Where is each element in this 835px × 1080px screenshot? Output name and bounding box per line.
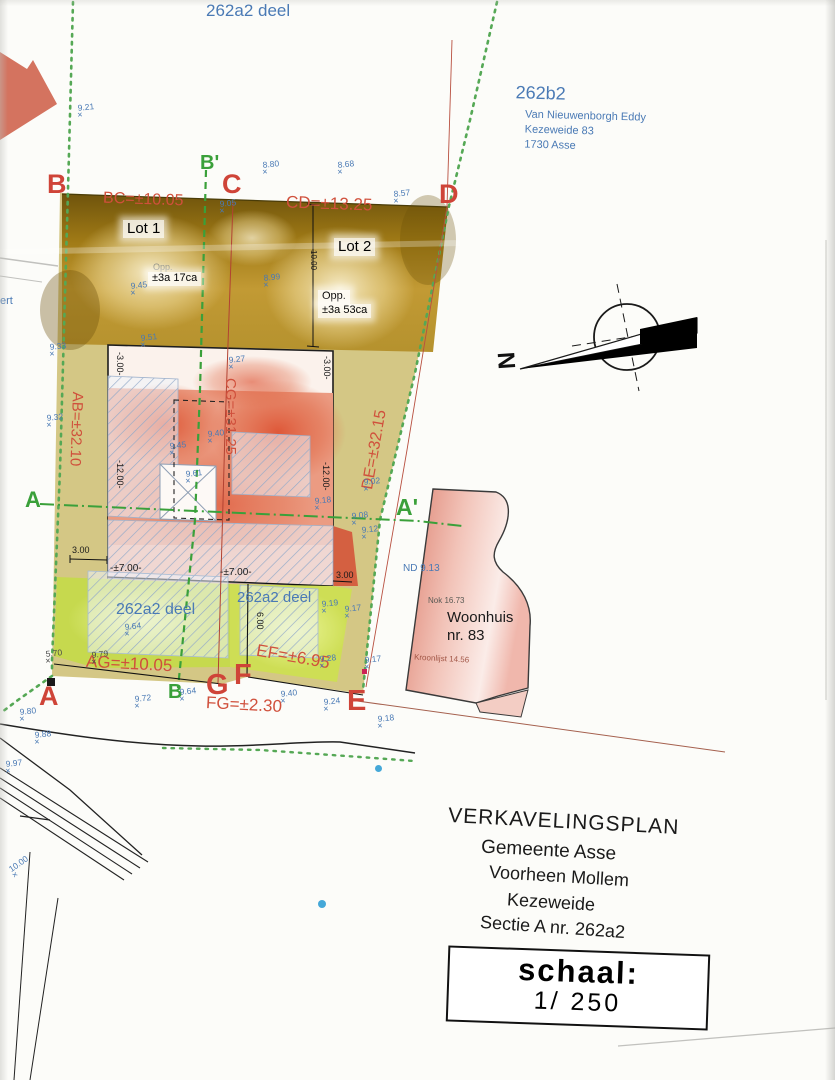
spot-height: 8.68× (337, 160, 355, 176)
measure-cg: CG=±31.25 (222, 378, 238, 455)
lot1-label: Lot 1 (123, 220, 164, 238)
spot-height: 9.97× (5, 759, 23, 775)
measure-ab: AB=±32.10 (67, 391, 85, 466)
woonhuis-shape (406, 489, 530, 717)
north-label: N (493, 351, 519, 370)
front-garden-left (54, 571, 230, 668)
point-e: E (347, 686, 366, 716)
spot-height: 9.51× (140, 333, 158, 349)
verkavelingsplan-scan: 262a2 deel ert 262b2 Van Nieuwenborgh Ed… (0, 0, 835, 1080)
point-a-left: A (25, 488, 41, 511)
neighbor-city: 1730 Asse (524, 137, 645, 155)
spot-height: 9.27× (228, 355, 246, 371)
spot-height: 9.17× (344, 604, 362, 620)
point-b-prime: B' (200, 153, 219, 174)
lot2-opp-label: Opp. (318, 290, 350, 304)
lot1-area: ±3a 17ca (148, 272, 201, 286)
point-a-prime: A' (396, 495, 418, 519)
dim-three-right: 3.00 (336, 571, 354, 580)
spot-height: 8.80× (262, 160, 280, 176)
measure-cd: CD=±13.25 (286, 193, 373, 214)
spot-height: 9.32× (46, 413, 64, 429)
spot-height: 8.99× (263, 273, 281, 289)
point-d: D (439, 180, 459, 208)
plan-drawing (0, 0, 835, 1080)
point-c: C (222, 170, 242, 198)
compass-rose (520, 284, 697, 391)
existing-building-hatch-right (232, 432, 310, 497)
dim-7-right: -±7.00- (220, 568, 252, 579)
spot-height: 9.17× (364, 655, 382, 671)
neighbor-parcel-id: 262b2 (515, 83, 646, 105)
point-b-top: B (47, 170, 67, 198)
spot-height: 9.40× (280, 689, 298, 705)
lot2-label: Lot 2 (334, 238, 375, 256)
point-a-bottom: A (39, 682, 59, 710)
lot2-area: ±3a 53ca (318, 304, 371, 318)
spot-height: 9.80× (19, 707, 37, 723)
spot-height: 9.24× (323, 697, 341, 713)
house-nd-label: ND 9.13 (403, 564, 440, 575)
lots-band (40, 194, 456, 352)
spot-height: 9.40× (207, 429, 225, 445)
scale-box: schaal: 1/ 250 (446, 945, 710, 1030)
spot-height: 9.33× (49, 342, 67, 358)
spot-height: 9.64× (179, 687, 197, 703)
measure-bc: BC=±10.05 (103, 191, 184, 211)
spot-height: 9.12× (361, 525, 379, 541)
spot-height: 5.70× (45, 649, 63, 665)
house-name: Woonhuis (447, 610, 513, 626)
dim-six: 6.00 (255, 612, 264, 630)
spot-height: 8.57× (393, 189, 411, 205)
spot-height: 9.45× (130, 281, 148, 297)
front-parcel-right-label: 262a2 deel (237, 590, 311, 606)
front-parcel-left-label: 262a2 deel (116, 602, 195, 619)
dim-12-left: -12.00- (115, 460, 124, 489)
ink-dot (318, 900, 326, 908)
spot-height: 9.18× (314, 496, 332, 512)
corner-arrow (0, 52, 57, 140)
spot-height: 9.19× (321, 599, 339, 615)
spot-height: 9.05× (219, 199, 237, 215)
measure-fg: FG=±2.30 (206, 694, 283, 716)
dim-10: 10.00 (309, 250, 317, 270)
house-nok-label: Nok 16.73 (428, 597, 464, 605)
dim-three-left: 3.00 (72, 546, 90, 555)
dim-3-left: -3.00- (115, 352, 124, 376)
house-number: nr. 83 (447, 628, 485, 644)
left-edge-text-fragment: ert (0, 296, 13, 308)
dim-7-left: -±7.00- (110, 564, 142, 575)
spot-height: 9.18× (377, 714, 395, 730)
spot-height: 9.02× (363, 477, 381, 493)
spot-height: 9.64× (124, 622, 142, 638)
dim-3-right: -3.00- (322, 356, 331, 380)
spot-height: 9.88× (34, 730, 52, 746)
point-f: F (234, 660, 252, 690)
spot-height: 9.72× (134, 694, 152, 710)
spot-height: 9.28× (319, 654, 337, 670)
spot-height: 9.79× (91, 650, 109, 666)
ink-dot (375, 765, 382, 772)
top-parcel-label: 262a2 deel (206, 2, 290, 20)
neighbor-parcel-block: 262b2 Van Nieuwenborgh Eddy Kezeweide 83… (514, 83, 647, 155)
spot-height: 9.21× (77, 103, 95, 119)
spot-height: 9.45× (169, 441, 187, 457)
north-needle (520, 317, 697, 369)
spot-height: 9.61× (185, 469, 203, 485)
dim-12-right: -12.00- (321, 462, 330, 491)
